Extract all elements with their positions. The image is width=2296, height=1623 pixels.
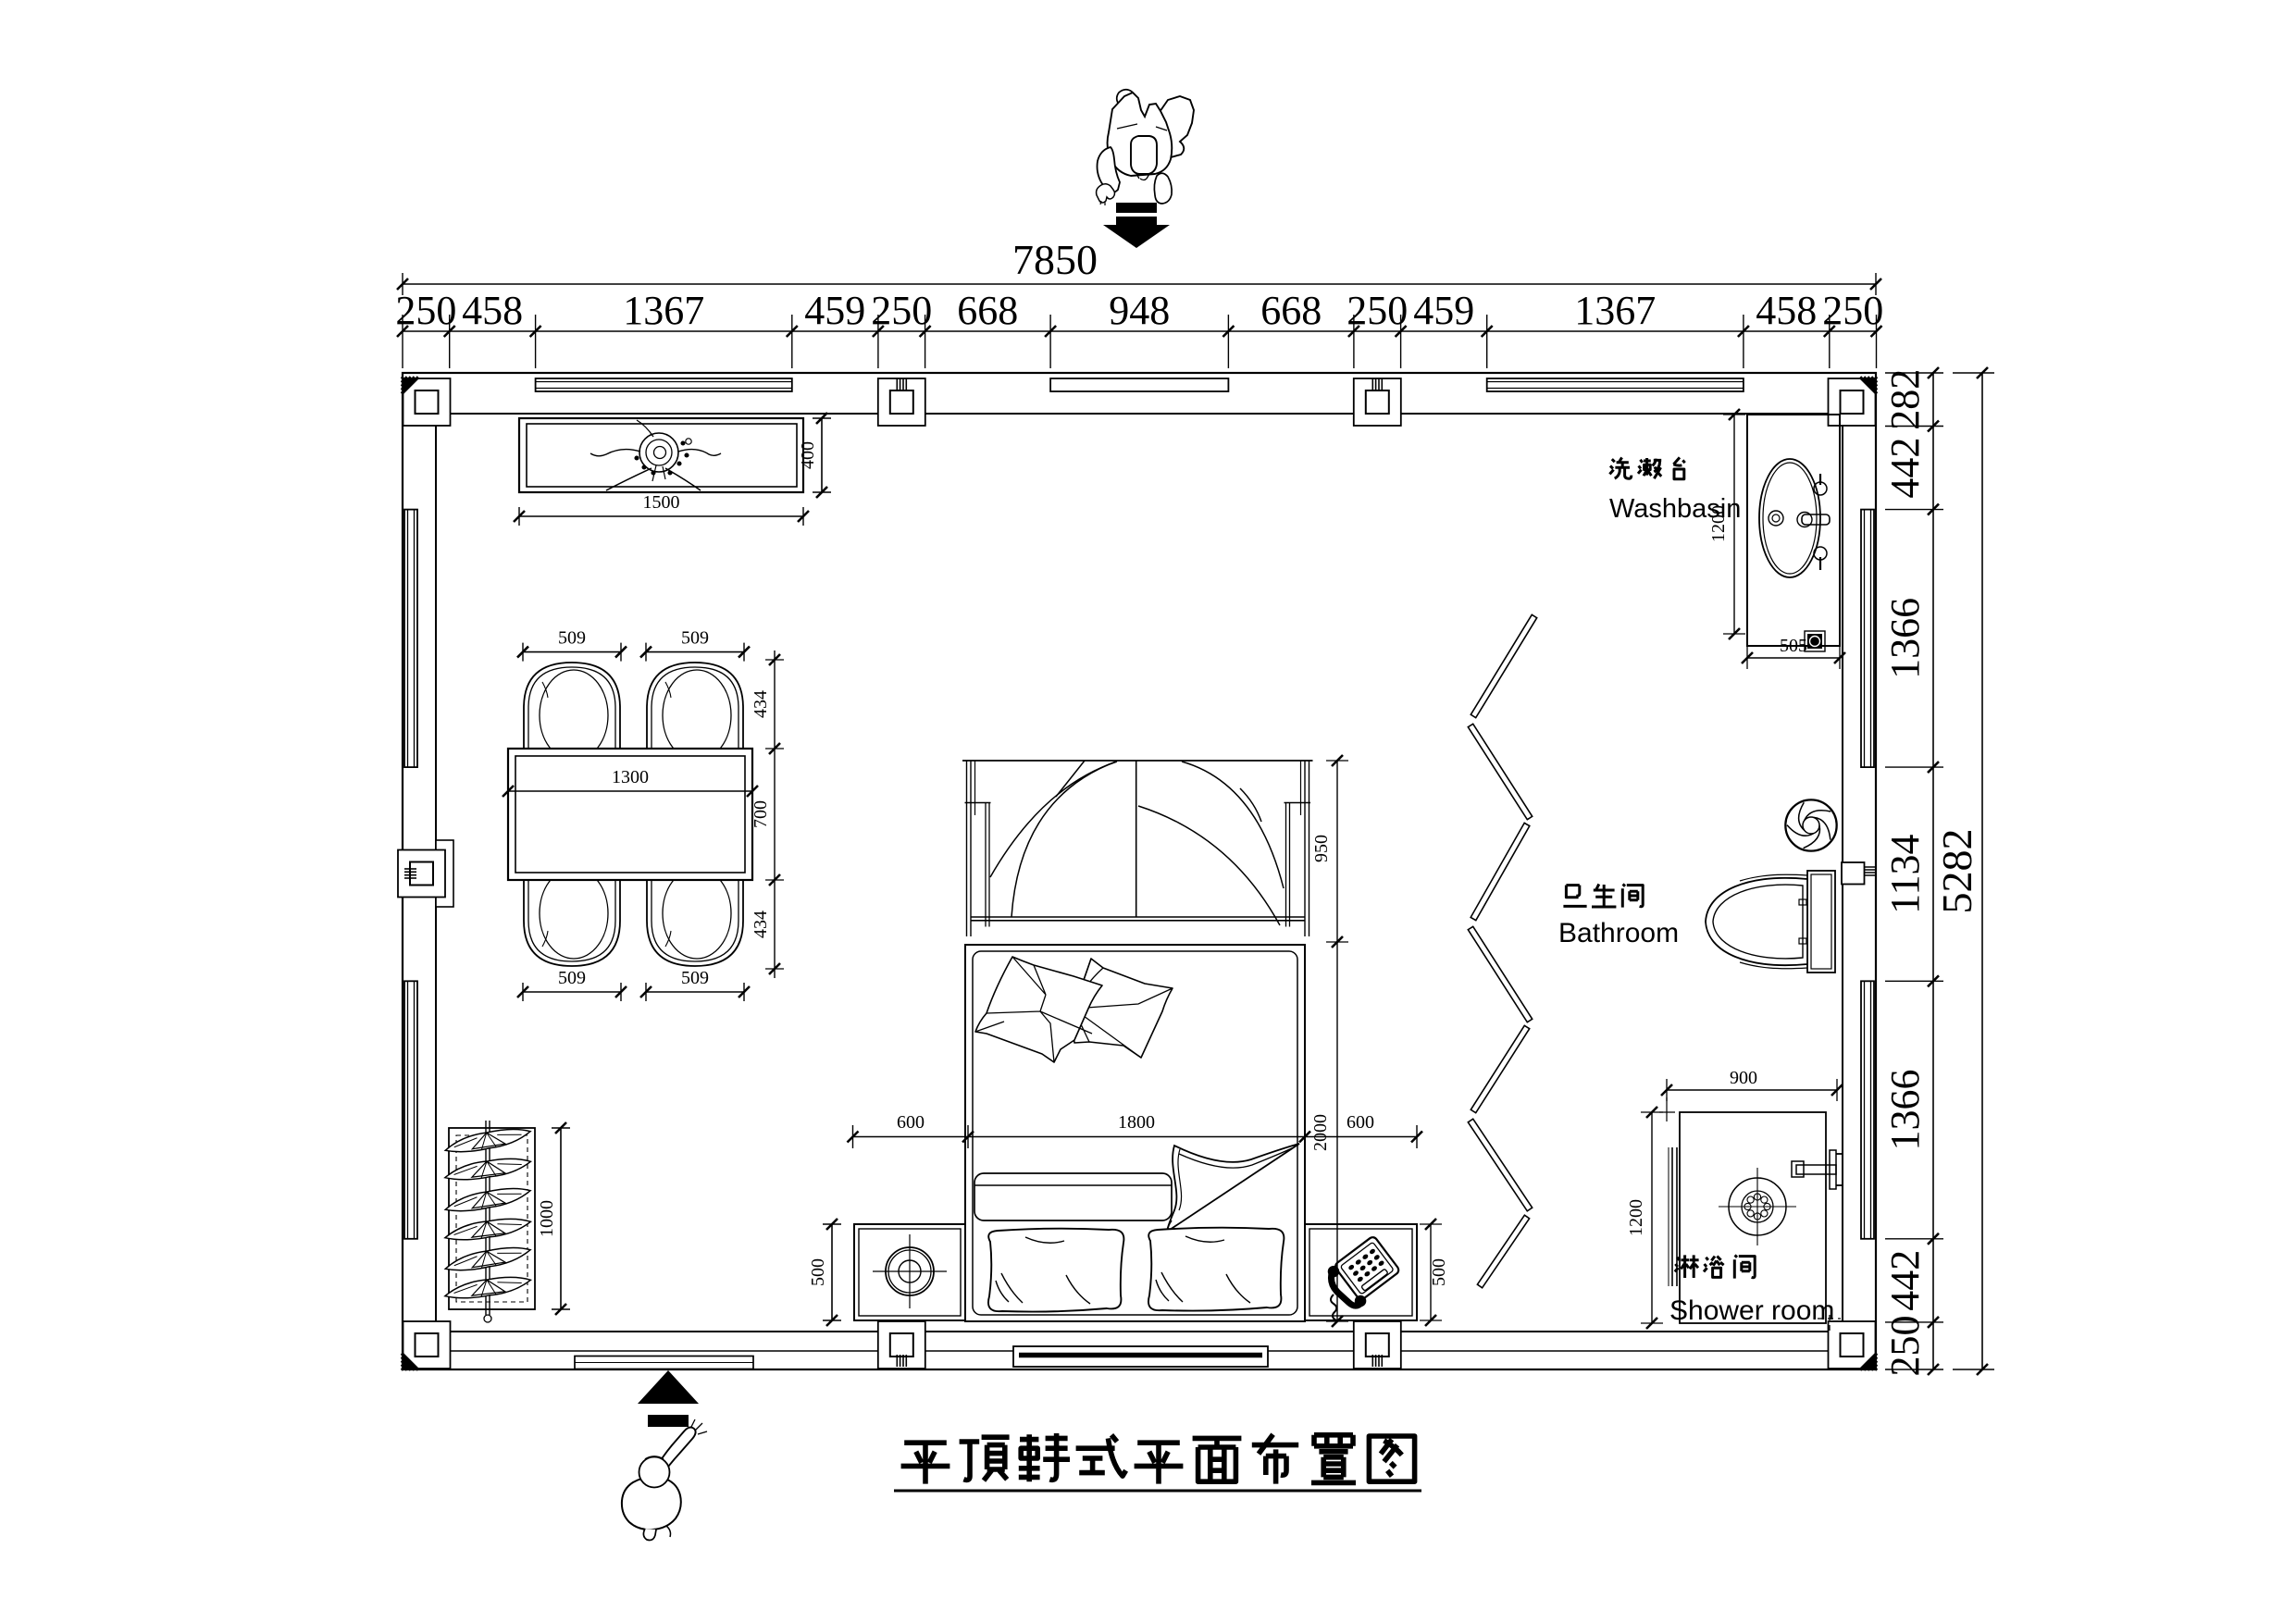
svg-text:442: 442: [1882, 1250, 1928, 1311]
svg-text:250: 250: [1882, 1316, 1928, 1377]
svg-text:700: 700: [751, 800, 771, 828]
svg-text:500: 500: [1429, 1258, 1449, 1286]
svg-text:600: 600: [1347, 1112, 1374, 1133]
svg-text:668: 668: [1260, 288, 1322, 333]
svg-text:Bathroom: Bathroom: [1558, 918, 1679, 948]
svg-text:1367: 1367: [623, 288, 704, 333]
svg-text:Washbasin: Washbasin: [1609, 494, 1741, 524]
svg-text:509: 509: [681, 968, 709, 988]
svg-text:505: 505: [1780, 636, 1807, 656]
svg-text:509: 509: [558, 968, 586, 988]
svg-text:434: 434: [751, 690, 771, 718]
svg-text:1366: 1366: [1882, 1070, 1928, 1151]
svg-text:1800: 1800: [1118, 1112, 1155, 1133]
svg-text:282: 282: [1882, 369, 1928, 430]
svg-text:1367: 1367: [1574, 288, 1656, 333]
svg-text:458: 458: [462, 288, 523, 333]
svg-text:1000: 1000: [537, 1200, 557, 1237]
svg-text:5282: 5282: [1933, 829, 1980, 914]
svg-text:434: 434: [751, 911, 771, 938]
svg-text:1134: 1134: [1882, 835, 1928, 914]
svg-text:250: 250: [1347, 288, 1408, 333]
svg-text:900: 900: [1730, 1068, 1757, 1088]
svg-text:1200: 1200: [1626, 1199, 1646, 1236]
svg-text:509: 509: [681, 628, 709, 649]
svg-text:400: 400: [798, 441, 818, 469]
svg-text:250: 250: [1822, 288, 1883, 333]
svg-text:442: 442: [1882, 438, 1928, 499]
svg-text:Shower room: Shower room: [1669, 1295, 1834, 1326]
svg-text:459: 459: [804, 288, 865, 333]
svg-text:250: 250: [871, 288, 932, 333]
svg-text:668: 668: [957, 288, 1018, 333]
svg-text:600: 600: [897, 1112, 925, 1133]
svg-text:948: 948: [1109, 288, 1170, 333]
svg-text:1366: 1366: [1882, 598, 1928, 679]
svg-text:1300: 1300: [612, 767, 649, 787]
svg-text:7850: 7850: [1012, 236, 1098, 283]
svg-text:950: 950: [1311, 835, 1332, 862]
svg-text:509: 509: [558, 628, 586, 649]
svg-text:1500: 1500: [643, 492, 680, 513]
svg-text:2000: 2000: [1310, 1114, 1331, 1151]
svg-text:250: 250: [395, 288, 456, 333]
svg-text:500: 500: [808, 1258, 828, 1286]
svg-text:458: 458: [1756, 288, 1817, 333]
svg-text:459: 459: [1413, 288, 1474, 333]
